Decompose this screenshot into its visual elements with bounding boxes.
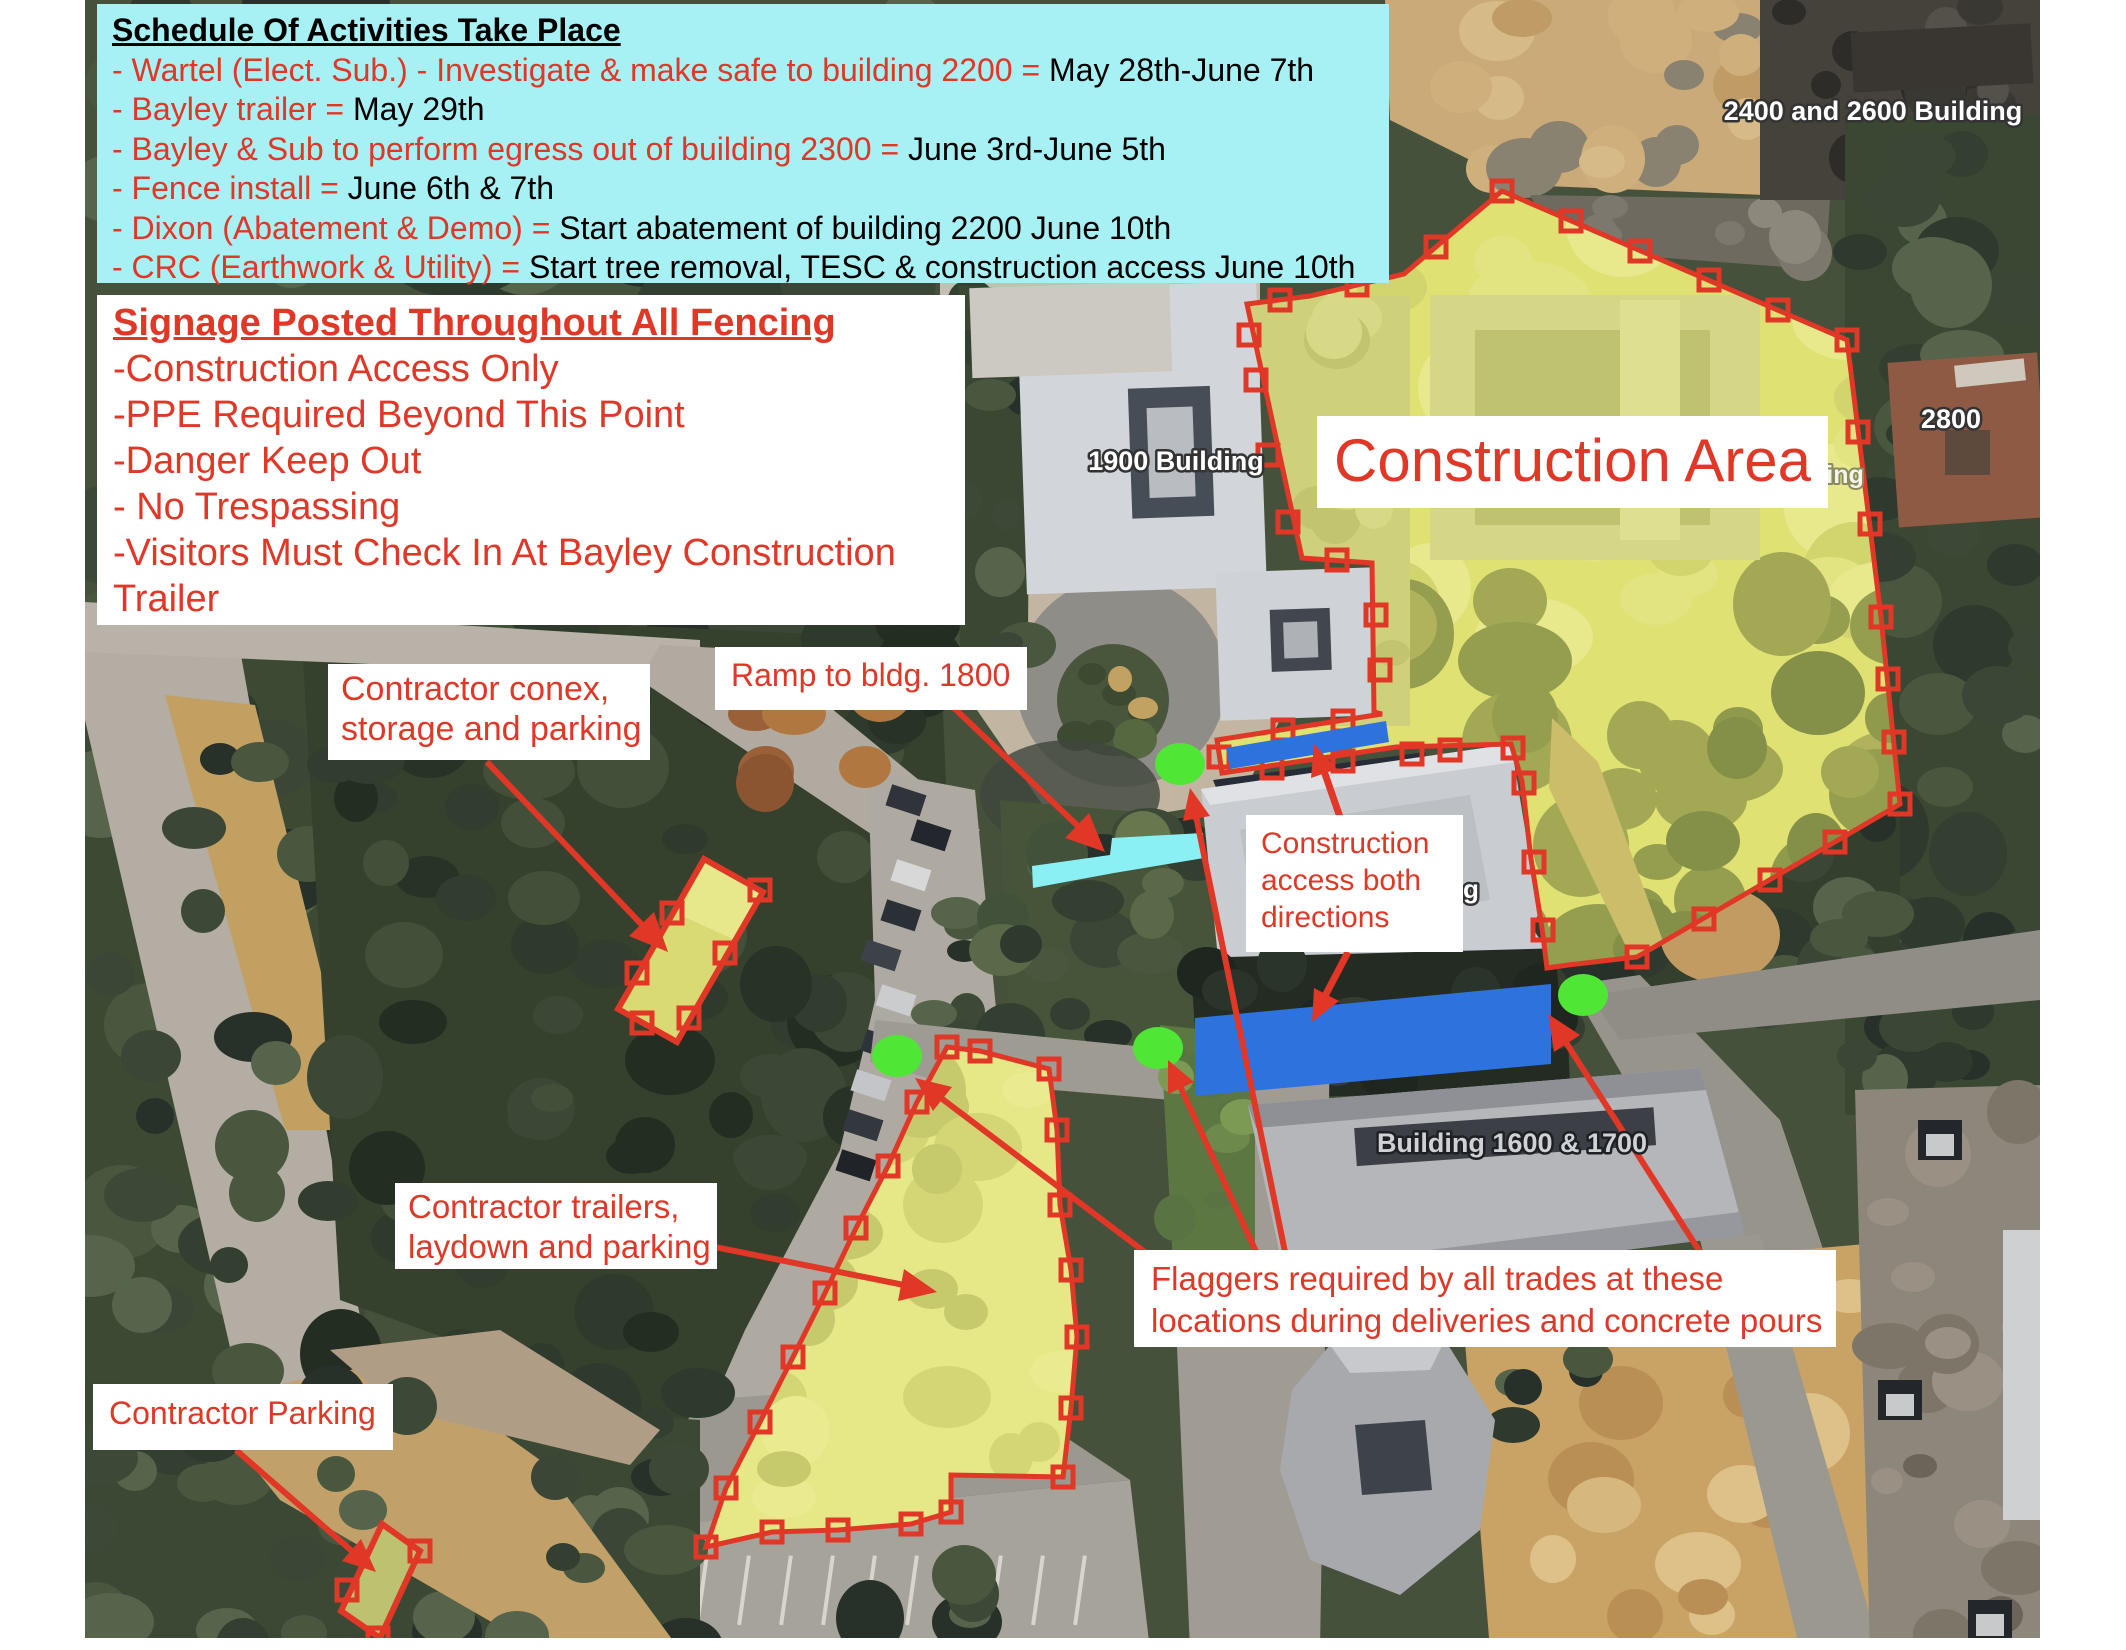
svg-text:ing: ing (1826, 461, 1864, 489)
svg-text:2800: 2800 (1921, 404, 1981, 434)
svg-text:1900 Building: 1900 Building (1088, 446, 1264, 476)
svg-text:2400 and 2600 Building: 2400 and 2600 Building (1724, 96, 2023, 126)
svg-text:Building 1600 & 1700: Building 1600 & 1700 (1377, 1128, 1647, 1158)
